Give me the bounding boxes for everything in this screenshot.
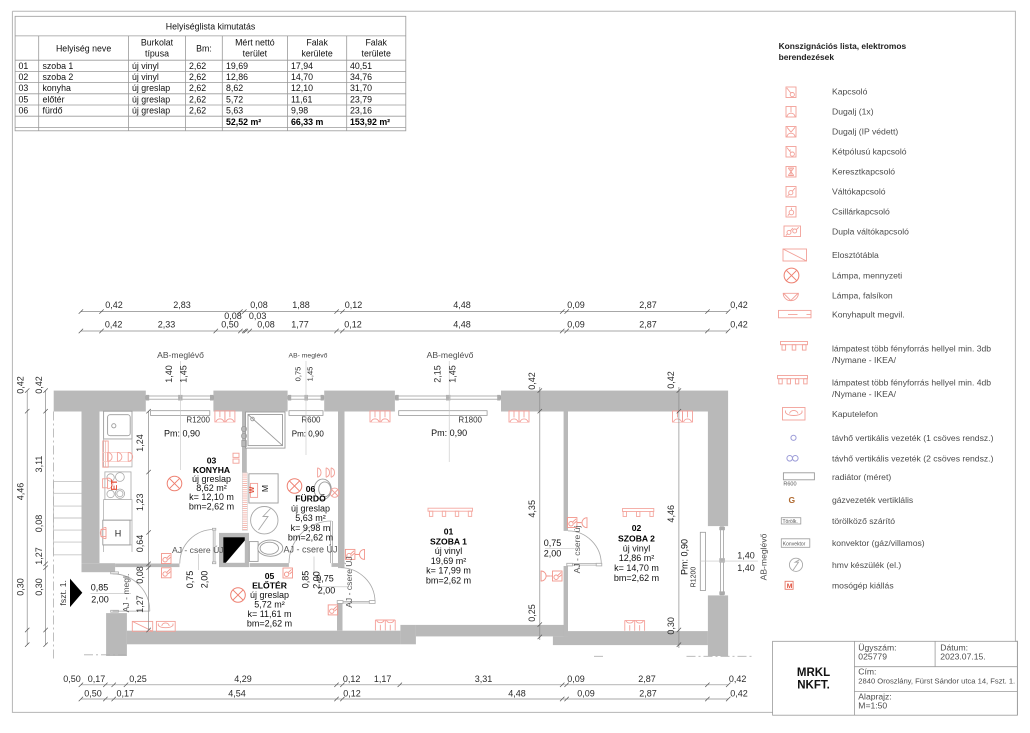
svg-text:Lámpa, mennyzeti: Lámpa, mennyzeti (832, 271, 902, 281)
svg-text:új vinyl: új vinyl (623, 543, 651, 553)
svg-text:R1200: R1200 (691, 567, 698, 588)
svg-text:hmv készülék (el.): hmv készülék (el.) (832, 560, 901, 570)
svg-text:1,45: 1,45 (306, 367, 315, 382)
svg-text:AB-meglévő: AB-meglévő (157, 350, 204, 360)
svg-text:0,08: 0,08 (135, 566, 145, 584)
svg-text:2,62: 2,62 (189, 72, 206, 82)
svg-text:bm=2,62 m: bm=2,62 m (189, 501, 234, 511)
svg-text:23,79: 23,79 (350, 94, 372, 104)
svg-text:0,17: 0,17 (117, 689, 135, 699)
svg-text:szoba 2: szoba 2 (43, 72, 74, 82)
svg-text:távhő vertikális vezeték (1 cs: távhő vertikális vezeték (1 csöves rends… (832, 433, 994, 443)
svg-text:ELŐTÉR: ELŐTÉR (252, 579, 288, 590)
svg-text:9,98: 9,98 (291, 106, 308, 116)
svg-text:0,42: 0,42 (527, 372, 537, 390)
svg-text:AB-meglévő: AB-meglévő (759, 533, 769, 580)
svg-text:Lámpa, falsíkon: Lámpa, falsíkon (832, 291, 893, 301)
svg-text:1,23: 1,23 (135, 493, 145, 511)
svg-text:Törölk.: Törölk. (783, 519, 798, 525)
svg-text:R600: R600 (783, 482, 796, 488)
svg-text:23,16: 23,16 (350, 106, 372, 116)
svg-text:1,40: 1,40 (164, 365, 174, 383)
svg-text:0,12: 0,12 (343, 689, 361, 699)
svg-text:02: 02 (19, 72, 29, 82)
svg-text:0,08: 0,08 (257, 320, 275, 330)
svg-text:01: 01 (19, 61, 29, 71)
svg-text:Csillárkapcsoló: Csillárkapcsoló (832, 207, 890, 217)
svg-text:új greslap: új greslap (291, 503, 330, 513)
svg-text:új vinyl: új vinyl (435, 546, 463, 556)
svg-text:Dugalj (1x): Dugalj (1x) (832, 107, 874, 117)
svg-text:1,40: 1,40 (737, 563, 755, 573)
svg-text:0,50: 0,50 (84, 689, 102, 699)
svg-text:R1200: R1200 (186, 416, 210, 425)
svg-text:01: 01 (444, 526, 454, 536)
svg-text:1,45: 1,45 (448, 365, 458, 383)
svg-text:szoba 1: szoba 1 (43, 61, 74, 71)
svg-text:törölköző szárító: törölköző szárító (832, 516, 895, 526)
svg-text:0,17: 0,17 (88, 674, 106, 684)
svg-text:2,87: 2,87 (638, 674, 656, 684)
svg-text:2,00: 2,00 (91, 595, 109, 605)
svg-text:1,17: 1,17 (374, 674, 392, 684)
svg-text:bm=2,62 m: bm=2,62 m (247, 618, 292, 628)
svg-text:k= 11,61 m: k= 11,61 m (247, 609, 291, 619)
svg-text:bm=2,62 m: bm=2,62 m (426, 576, 471, 586)
svg-text:FÜRDŐ: FÜRDŐ (295, 493, 326, 504)
svg-text:típusa: típusa (145, 49, 169, 59)
svg-text:5,63 m²: 5,63 m² (295, 513, 326, 523)
svg-text:0,09: 0,09 (567, 300, 585, 310)
svg-text:4,54: 4,54 (228, 689, 246, 699)
svg-text:AJ - csere ÚJ: AJ - csere ÚJ (344, 556, 354, 608)
svg-text:4,48: 4,48 (508, 689, 526, 699)
svg-text:0,42: 0,42 (666, 371, 676, 389)
svg-text:0,50: 0,50 (63, 674, 81, 684)
svg-text:AJ - csere új: AJ - csere új (572, 526, 582, 574)
svg-text:bm=2,62 m: bm=2,62 m (288, 533, 333, 543)
svg-text:k= 9,98 m: k= 9,98 m (291, 523, 331, 533)
svg-text:Pm: 0,90: Pm: 0,90 (431, 428, 467, 438)
svg-text:4,48: 4,48 (453, 320, 471, 330)
svg-text:2,62: 2,62 (189, 83, 206, 93)
svg-text:5,63: 5,63 (226, 106, 243, 116)
svg-text:4,46: 4,46 (16, 483, 26, 501)
svg-text:40,51: 40,51 (350, 61, 372, 71)
svg-text:Mért nettó: Mért nettó (235, 38, 275, 48)
svg-text:2,15: 2,15 (433, 365, 443, 383)
svg-text:03: 03 (207, 455, 217, 465)
svg-text:1,27: 1,27 (34, 547, 44, 565)
svg-text:025779: 025779 (858, 652, 887, 662)
svg-text:SZOBA 2: SZOBA 2 (618, 533, 655, 543)
svg-text:66,33 m: 66,33 m (291, 117, 323, 127)
svg-text:4,29: 4,29 (234, 674, 252, 684)
svg-text:új vinyl: új vinyl (132, 72, 159, 82)
svg-text:1,40: 1,40 (737, 550, 755, 560)
svg-text:területe: területe (362, 49, 391, 59)
svg-text:0,30: 0,30 (34, 578, 44, 596)
svg-text:NKFT.: NKFT. (797, 680, 830, 692)
svg-text:0,85: 0,85 (301, 571, 311, 589)
svg-text:2023.07.15.: 2023.07.15. (940, 652, 985, 662)
svg-text:2,87: 2,87 (639, 320, 657, 330)
svg-text:05: 05 (19, 94, 29, 104)
svg-text:Váltókapcsoló: Váltókapcsoló (832, 187, 886, 197)
svg-text:2,00: 2,00 (318, 586, 336, 596)
svg-text:AJ - megl.: AJ - megl. (121, 574, 131, 613)
svg-text:Bm:: Bm: (196, 44, 212, 54)
svg-text:Falak: Falak (365, 38, 387, 48)
svg-text:3,31: 3,31 (475, 674, 493, 684)
svg-text:52,52 m²: 52,52 m² (226, 117, 261, 127)
svg-text:H: H (115, 529, 122, 539)
svg-text:ET: ET (109, 479, 119, 491)
svg-text:AB-meglévő: AB-meglévő (427, 350, 474, 360)
svg-text:új greslap: új greslap (132, 94, 170, 104)
svg-text:fszt. 1.: fszt. 1. (58, 580, 68, 605)
svg-text:Konvektor: Konvektor (783, 541, 806, 547)
svg-text:Falak: Falak (306, 38, 328, 48)
svg-text:0,08: 0,08 (250, 300, 268, 310)
svg-text:0,30: 0,30 (666, 617, 676, 635)
svg-text:Dugalj (IP védett): Dugalj (IP védett) (832, 127, 898, 137)
svg-text:új greslap: új greslap (132, 83, 170, 93)
svg-text:Helyiséglista kimutatás: Helyiséglista kimutatás (166, 22, 256, 32)
svg-text:1,27: 1,27 (135, 595, 145, 613)
svg-text:1,77: 1,77 (291, 320, 309, 330)
svg-text:2,00: 2,00 (544, 549, 562, 559)
svg-text:5,72 m²: 5,72 m² (254, 599, 285, 609)
svg-text:G: G (789, 495, 796, 505)
svg-text:0,42: 0,42 (105, 300, 123, 310)
svg-text:19,69: 19,69 (226, 61, 248, 71)
svg-text:0,12: 0,12 (343, 674, 361, 684)
svg-text:2,87: 2,87 (639, 300, 657, 310)
svg-text:0,75: 0,75 (294, 367, 303, 382)
svg-text:0,42: 0,42 (16, 376, 26, 394)
svg-text:kerülete: kerülete (301, 49, 332, 59)
svg-text:2,62: 2,62 (189, 94, 206, 104)
svg-text:lámpatest több fényforrás hell: lámpatest több fényforrás hellyel min. 3… (832, 344, 991, 354)
svg-text:Burkolat: Burkolat (141, 38, 174, 48)
svg-text:Helyiség neve: Helyiség neve (56, 44, 111, 54)
svg-text:lámpatest több fényforrás hell: lámpatest több fényforrás hellyel min. 4… (832, 378, 991, 388)
svg-text:Kapcsoló: Kapcsoló (832, 87, 868, 97)
svg-text:M: M (260, 485, 270, 492)
svg-text:radiátor (méret): radiátor (méret) (832, 472, 891, 482)
svg-text:12,86 m²: 12,86 m² (619, 553, 655, 563)
svg-text:19,69 m²: 19,69 m² (431, 556, 467, 566)
svg-text:8,62: 8,62 (226, 83, 243, 93)
svg-text:új greslap: új greslap (250, 590, 289, 600)
svg-text:M=1:50: M=1:50 (858, 701, 887, 711)
svg-text:0,09: 0,09 (567, 320, 585, 330)
svg-text:Kétpólusú kapcsoló: Kétpólusú kapcsoló (832, 147, 907, 157)
svg-text:Pm: 0,90: Pm: 0,90 (164, 429, 200, 439)
svg-text:0,12: 0,12 (345, 300, 363, 310)
svg-text:Konyhapult megvil.: Konyhapult megvil. (832, 310, 905, 320)
svg-text:2840 Oroszlány, Fürst Sándor u: 2840 Oroszlány, Fürst Sándor utca 14, Fs… (858, 677, 1015, 686)
svg-text:14,70: 14,70 (291, 72, 313, 82)
svg-text:0,75: 0,75 (185, 571, 195, 589)
svg-text:02: 02 (632, 523, 642, 533)
svg-text:03: 03 (19, 83, 29, 93)
svg-text:AB- meglévő: AB- meglévő (289, 353, 328, 360)
svg-text:2,87: 2,87 (639, 689, 657, 699)
svg-text:05: 05 (265, 571, 275, 581)
svg-text:1,24: 1,24 (135, 434, 145, 452)
svg-text:k= 14,70 m: k= 14,70 m (614, 563, 659, 573)
svg-text:W: W (249, 486, 256, 493)
svg-text:0,50: 0,50 (221, 320, 239, 330)
svg-text:Pm: 0,90: Pm: 0,90 (679, 539, 689, 575)
svg-text:bm=2,62 m: bm=2,62 m (614, 573, 659, 583)
svg-text:R600: R600 (301, 416, 321, 425)
svg-text:2,83: 2,83 (173, 300, 191, 310)
svg-text:fürdő: fürdő (43, 106, 63, 116)
svg-text:Pm: 0,90: Pm: 0,90 (292, 429, 325, 438)
svg-text:0,42: 0,42 (105, 320, 123, 330)
svg-text:0,09: 0,09 (567, 674, 585, 684)
svg-text:0,25: 0,25 (527, 604, 537, 622)
svg-text:0,85: 0,85 (91, 583, 109, 593)
svg-text:konvektor (gáz/villamos): konvektor (gáz/villamos) (832, 538, 925, 548)
svg-text:1,45: 1,45 (179, 365, 189, 383)
svg-text:konyha: konyha (43, 83, 71, 93)
svg-text:4,46: 4,46 (666, 505, 676, 523)
svg-text:új greslap: új greslap (132, 106, 170, 116)
svg-text:4,35: 4,35 (527, 500, 537, 518)
svg-text:/Nymane - IKEA/: /Nymane - IKEA/ (832, 355, 897, 365)
svg-text:SZOBA 1: SZOBA 1 (430, 536, 467, 546)
svg-text:berendezések: berendezések (779, 52, 835, 62)
svg-text:mosógép kiállás: mosógép kiállás (832, 581, 894, 591)
svg-text:2,33: 2,33 (158, 320, 176, 330)
svg-text:0,09: 0,09 (577, 689, 595, 699)
svg-text:AJ - csere ÚJ: AJ - csere ÚJ (172, 545, 224, 555)
svg-text:06: 06 (19, 106, 29, 116)
svg-text:MRKL: MRKL (797, 667, 830, 679)
svg-text:31,70: 31,70 (350, 83, 372, 93)
svg-text:12,86: 12,86 (226, 72, 248, 82)
svg-text:06: 06 (306, 484, 316, 494)
svg-text:Kaputelefon: Kaputelefon (832, 409, 878, 419)
svg-text:előtér: előtér (43, 94, 65, 104)
svg-text:2,62: 2,62 (189, 106, 206, 116)
svg-text:17,94: 17,94 (291, 61, 313, 71)
svg-text:0,08: 0,08 (224, 311, 242, 321)
svg-text:1,88: 1,88 (292, 300, 310, 310)
svg-text:AJ - csere ÚJ: AJ - csere ÚJ (283, 545, 337, 555)
svg-text:3,11: 3,11 (34, 456, 44, 473)
svg-text:0,42: 0,42 (730, 689, 748, 699)
svg-text:k= 17,99 m: k= 17,99 m (426, 566, 471, 576)
svg-text:11,61: 11,61 (291, 94, 312, 104)
svg-text:terület: terület (243, 49, 268, 59)
svg-text:új vinyl: új vinyl (132, 61, 159, 71)
svg-text:0,42: 0,42 (730, 320, 748, 330)
svg-text:0,42: 0,42 (729, 674, 747, 684)
svg-text:153,92 m²: 153,92 m² (350, 117, 390, 127)
svg-text:12,10: 12,10 (291, 83, 313, 93)
svg-text:0,42: 0,42 (34, 376, 44, 394)
svg-text:M: M (787, 583, 793, 590)
svg-text:0,42: 0,42 (730, 300, 748, 310)
svg-text:R1800: R1800 (458, 416, 482, 425)
svg-text:Cím:: Cím: (858, 667, 876, 677)
svg-text:/Nymane - IKEA/: /Nymane - IKEA/ (832, 389, 897, 399)
svg-text:0,25: 0,25 (129, 674, 147, 684)
svg-text:0,75: 0,75 (316, 574, 334, 584)
svg-text:0,08: 0,08 (34, 515, 44, 533)
svg-text:0,75: 0,75 (544, 538, 562, 548)
svg-text:gázvezeték vertiklális: gázvezeték vertiklális (832, 495, 913, 505)
svg-text:Keresztkapcsoló: Keresztkapcsoló (832, 167, 895, 177)
svg-text:0,64: 0,64 (135, 535, 145, 553)
svg-text:4,48: 4,48 (453, 300, 471, 310)
svg-text:5,72: 5,72 (226, 94, 243, 104)
svg-text:0,30: 0,30 (16, 578, 26, 596)
svg-text:Elosztótábla: Elosztótábla (832, 250, 879, 260)
svg-text:2,00: 2,00 (200, 571, 210, 589)
svg-text:0,12: 0,12 (344, 320, 362, 330)
svg-text:34,76: 34,76 (350, 72, 372, 82)
svg-text:Dupla váltókapcsoló: Dupla váltókapcsoló (832, 227, 909, 237)
svg-text:távhő vertikális vezeték (2 cs: távhő vertikális vezeték (2 csöves rends… (832, 454, 994, 464)
svg-text:Konszignációs lista, elektromo: Konszignációs lista, elektromos (779, 41, 907, 51)
svg-text:2,62: 2,62 (189, 61, 206, 71)
svg-text:0,03: 0,03 (249, 311, 267, 321)
